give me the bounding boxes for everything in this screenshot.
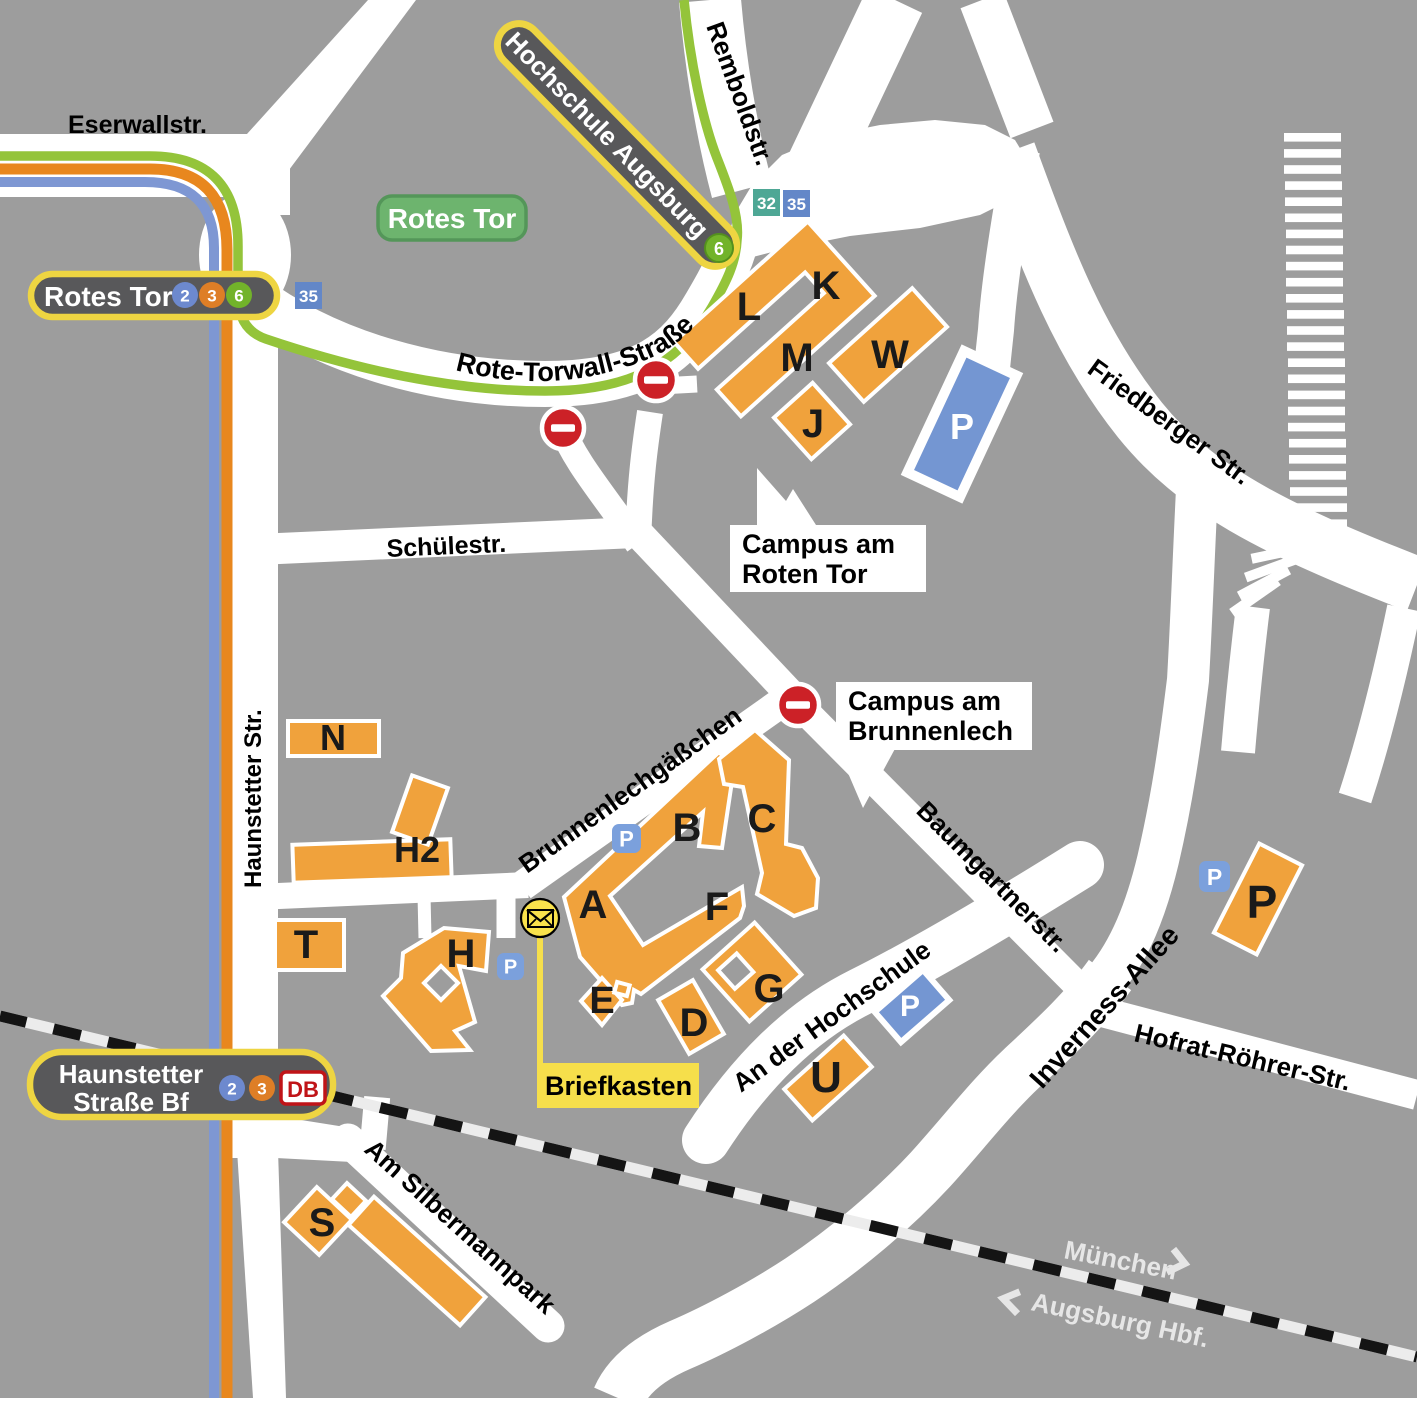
svg-text:P: P — [900, 990, 920, 1023]
svg-text:Haunstetter Str.: Haunstetter Str. — [240, 709, 267, 888]
svg-text:Straße Bf: Straße Bf — [73, 1087, 189, 1117]
svg-text:T: T — [294, 923, 318, 967]
svg-text:Eserwallstr.: Eserwallstr. — [68, 111, 207, 139]
svg-text:Brunnenlech: Brunnenlech — [848, 716, 1013, 746]
svg-text:Haunstetter: Haunstetter — [59, 1059, 203, 1089]
svg-text:K: K — [812, 264, 841, 308]
svg-text:DB: DB — [287, 1077, 319, 1102]
svg-text:3: 3 — [257, 1080, 266, 1099]
svg-text:G: G — [753, 967, 784, 1011]
svg-text:6: 6 — [714, 239, 724, 259]
svg-text:2: 2 — [180, 287, 189, 306]
svg-text:P: P — [1207, 864, 1222, 890]
svg-text:S: S — [309, 1201, 336, 1245]
svg-text:Briefkasten: Briefkasten — [545, 1071, 692, 1101]
svg-text:B: B — [673, 806, 702, 850]
svg-text:N: N — [320, 717, 346, 758]
svg-text:H: H — [447, 932, 476, 976]
svg-text:P: P — [950, 406, 974, 447]
svg-text:A: A — [579, 883, 608, 927]
svg-text:P: P — [1247, 876, 1278, 928]
svg-text:Roten Tor: Roten Tor — [742, 559, 868, 589]
svg-text:6: 6 — [234, 287, 243, 306]
svg-text:Schülestr.: Schülestr. — [386, 530, 507, 563]
svg-text:Campus am: Campus am — [848, 686, 1001, 716]
svg-text:35: 35 — [299, 287, 318, 306]
svg-text:D: D — [680, 1001, 709, 1045]
svg-text:M: M — [780, 336, 813, 380]
svg-text:W: W — [871, 333, 909, 377]
svg-text:Campus am: Campus am — [742, 529, 895, 559]
svg-text:Rotes Tor: Rotes Tor — [44, 281, 173, 312]
svg-text:C: C — [748, 797, 777, 841]
svg-text:2: 2 — [227, 1080, 236, 1099]
svg-text:F: F — [705, 885, 729, 929]
svg-text:H2: H2 — [394, 829, 440, 870]
svg-text:J: J — [802, 402, 824, 446]
svg-text:E: E — [589, 980, 614, 1022]
svg-text:U: U — [810, 1053, 842, 1102]
svg-text:L: L — [737, 285, 761, 329]
svg-text:35: 35 — [787, 195, 806, 214]
svg-text:3: 3 — [207, 287, 216, 306]
svg-text:P: P — [504, 957, 517, 979]
svg-text:P: P — [619, 826, 634, 851]
svg-text:32: 32 — [757, 194, 776, 213]
svg-text:Rotes Tor: Rotes Tor — [388, 203, 517, 234]
